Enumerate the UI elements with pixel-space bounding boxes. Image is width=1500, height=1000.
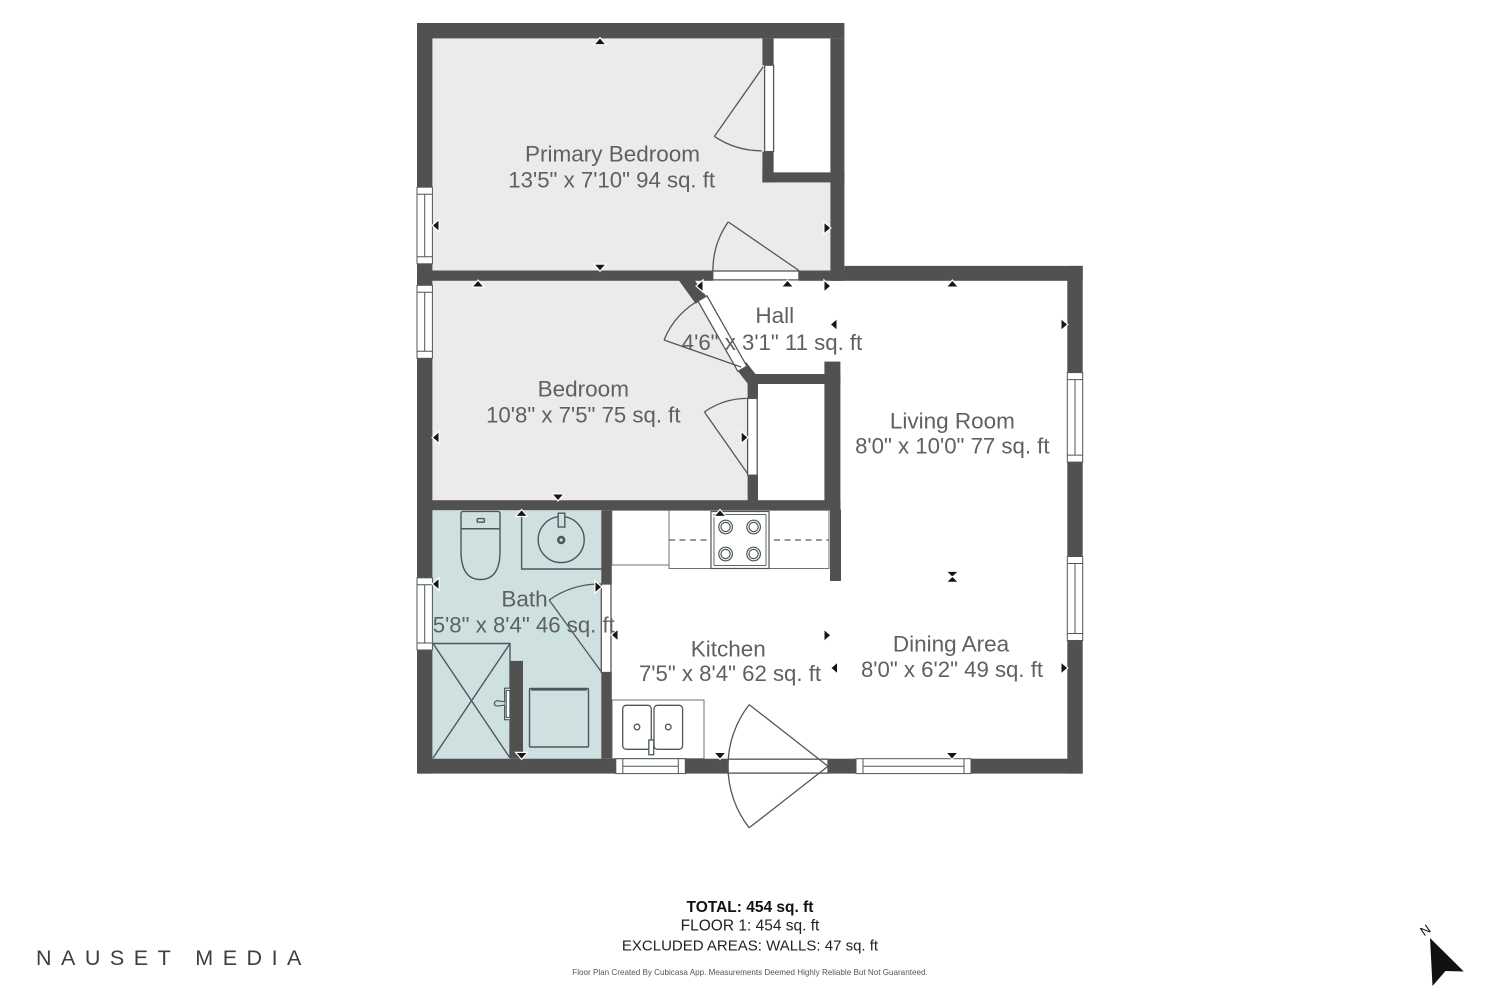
- svg-text:NAUSET MEDIA: NAUSET MEDIA: [36, 946, 311, 970]
- svg-text:TOTAL: 454 sq. ft: TOTAL: 454 sq. ft: [687, 899, 814, 916]
- svg-text:4'6" x 3'1" 11 sq. ft: 4'6" x 3'1" 11 sq. ft: [682, 330, 862, 355]
- svg-text:13'5" x 7'10" 94 sq. ft: 13'5" x 7'10" 94 sq. ft: [508, 168, 715, 193]
- svg-text:8'0" x 6'2" 49 sq. ft: 8'0" x 6'2" 49 sq. ft: [861, 657, 1043, 682]
- svg-text:7'5" x 8'4" 62 sq. ft: 7'5" x 8'4" 62 sq. ft: [639, 661, 821, 686]
- svg-text:FLOOR 1: 454 sq. ft: FLOOR 1: 454 sq. ft: [681, 918, 820, 935]
- svg-text:5'8" x 8'4" 46 sq. ft: 5'8" x 8'4" 46 sq. ft: [433, 613, 615, 638]
- svg-text:8'0" x 10'0" 77 sq. ft: 8'0" x 10'0" 77 sq. ft: [855, 433, 1049, 458]
- svg-text:Dining Area: Dining Area: [893, 632, 1010, 657]
- svg-text:Floor Plan Created By Cubicasa: Floor Plan Created By Cubicasa App. Meas…: [572, 968, 927, 977]
- svg-text:Bath: Bath: [501, 587, 547, 612]
- svg-text:Living Room: Living Room: [890, 408, 1015, 433]
- svg-text:Primary Bedroom: Primary Bedroom: [525, 141, 700, 166]
- svg-text:EXCLUDED AREAS: WALLS: 47 sq.: EXCLUDED AREAS: WALLS: 47 sq. ft: [622, 938, 879, 955]
- svg-text:Hall: Hall: [755, 303, 794, 328]
- svg-text:Kitchen: Kitchen: [691, 636, 766, 661]
- svg-text:10'8" x 7'5" 75 sq. ft: 10'8" x 7'5" 75 sq. ft: [486, 403, 680, 428]
- svg-text:Bedroom: Bedroom: [538, 376, 629, 401]
